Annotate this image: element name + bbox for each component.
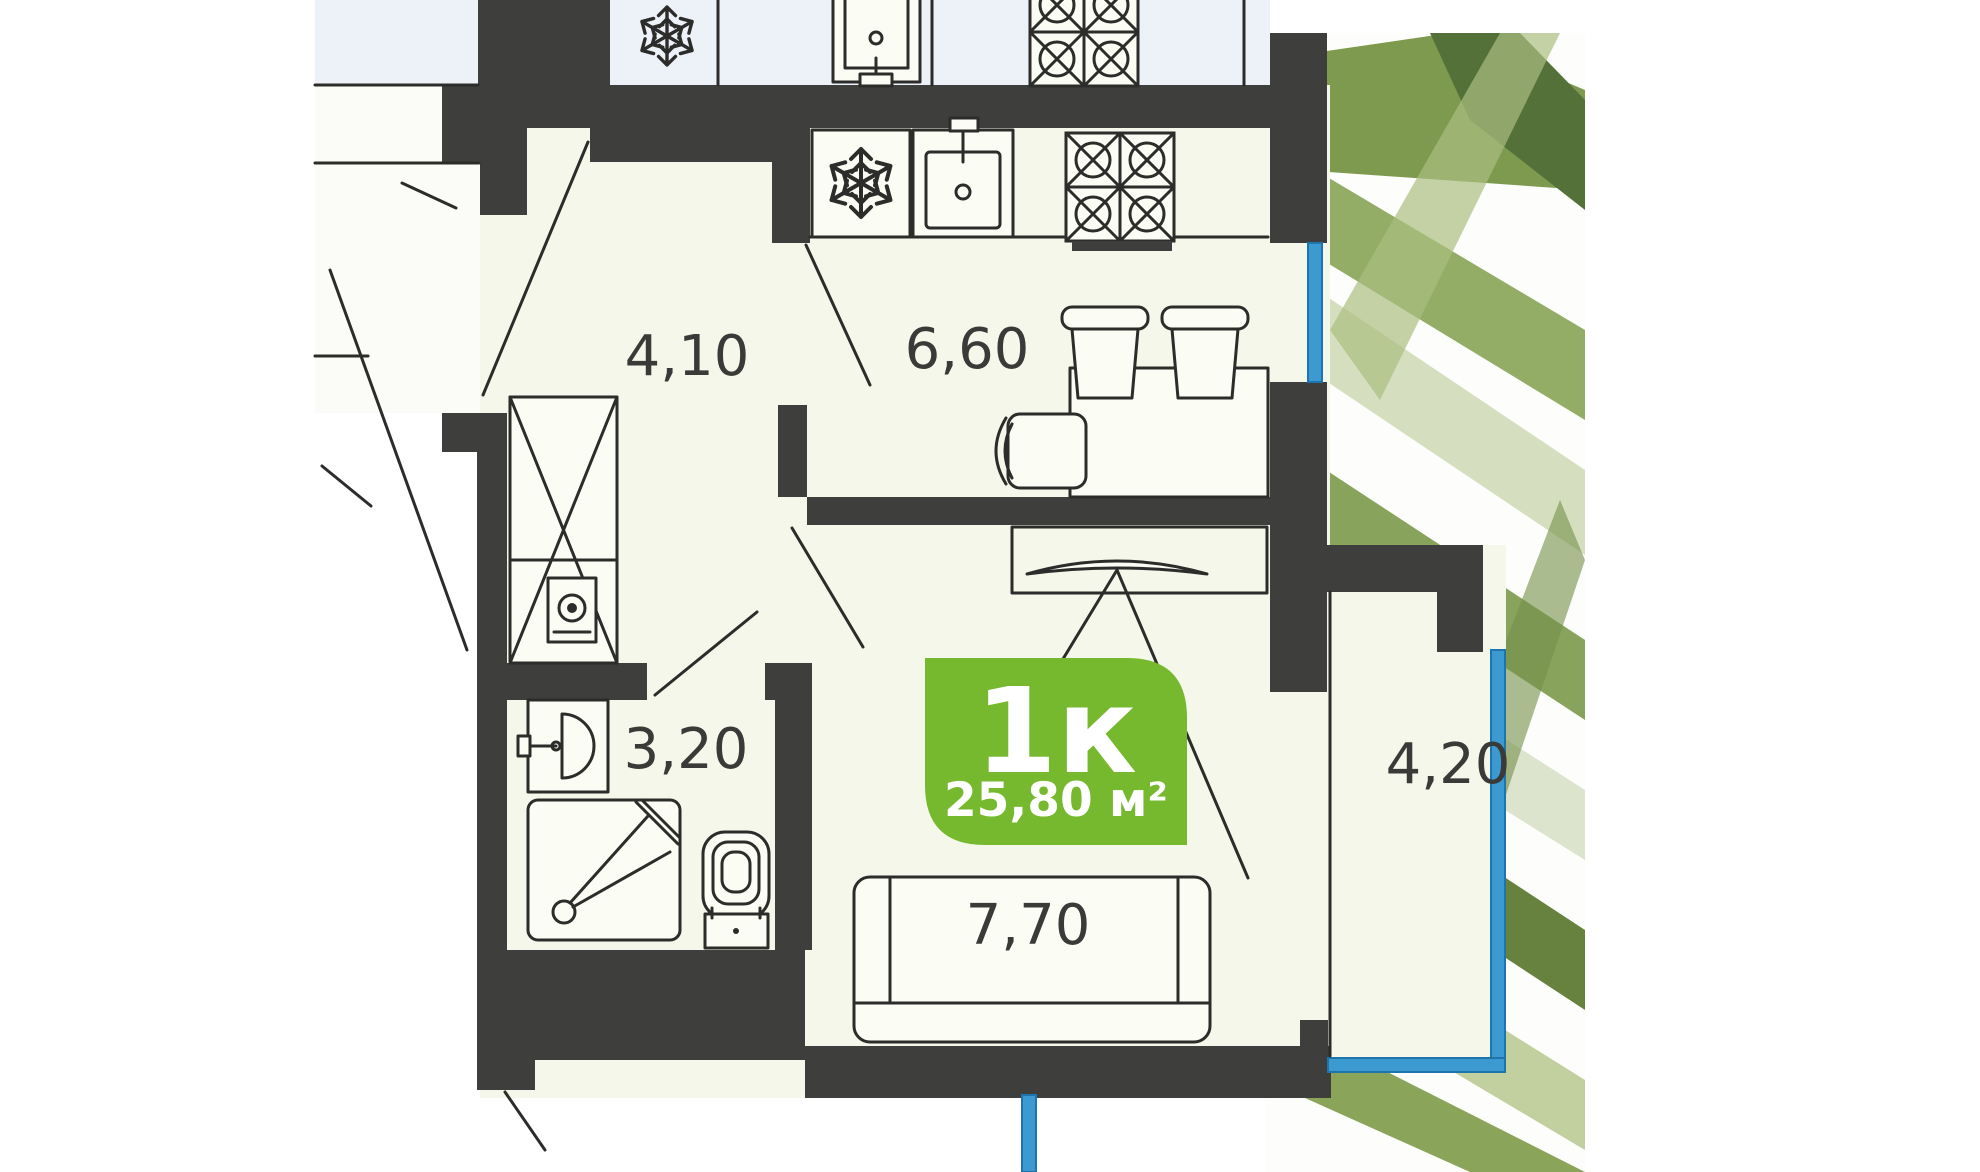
wall-bathroom-right (775, 700, 812, 950)
apartment-type-badge: 1к 25,80 м² (925, 658, 1187, 845)
wall-t-vertical (778, 405, 807, 497)
wall-balcony-bottom-stub (1300, 1020, 1328, 1080)
washbasin (518, 700, 608, 792)
wall-kitchen-stub (772, 128, 810, 243)
wall-right-upper-cap (1270, 33, 1327, 85)
wall-kitchen-living-divider (807, 497, 1270, 525)
floor-plan-page: 4,10 6,60 3,20 7,70 4,20 1к 25,80 м² (0, 0, 1980, 1172)
upper-apartment-room-left (315, 0, 478, 85)
window-kitchen (1308, 243, 1322, 382)
wall-bottom-left (477, 950, 805, 1060)
area-label-kitchen: 6,60 (905, 317, 1030, 382)
wall-left-pilaster (442, 413, 477, 452)
shower-cabin (528, 800, 680, 940)
toilet (703, 832, 769, 948)
wall-left-upper (480, 162, 527, 215)
wall-right-mid (1270, 382, 1327, 692)
wall-top-lower-left (442, 128, 527, 162)
window-balcony-right (1491, 650, 1505, 1072)
area-label-balcony: 4,20 (1386, 732, 1511, 797)
window-balcony-bottom (1328, 1058, 1505, 1072)
wall-bathroom-top-right (765, 663, 812, 700)
floor-plan: 4,10 6,60 3,20 7,70 4,20 1к 25,80 м² (0, 0, 1980, 1172)
badge-area-label: 25,80 м² (944, 773, 1168, 828)
chair (996, 414, 1086, 488)
wall-top-left-block (478, 0, 610, 85)
faucet-icon (950, 118, 978, 131)
wall-balcony-corner (1437, 592, 1483, 652)
wall-right-above-window (1270, 128, 1327, 243)
window-lower-neighbor (1022, 1095, 1036, 1172)
wall-bathroom-top-left (507, 663, 647, 700)
area-label-bathroom: 3,20 (624, 717, 749, 782)
stove (1066, 133, 1174, 251)
wall-top (442, 85, 1327, 128)
area-label-living-room: 7,70 (966, 893, 1091, 958)
wall-bottom (805, 1046, 1331, 1098)
wall-bottom-left-foot (477, 1060, 535, 1090)
wall-balcony-top (1327, 545, 1483, 592)
area-label-hallway: 4,10 (625, 324, 750, 389)
washing-machine (548, 578, 596, 642)
upper-apartment-strip (610, 0, 1270, 88)
hallway-fixtures (510, 397, 617, 663)
wall-top-lower-right (590, 128, 780, 162)
